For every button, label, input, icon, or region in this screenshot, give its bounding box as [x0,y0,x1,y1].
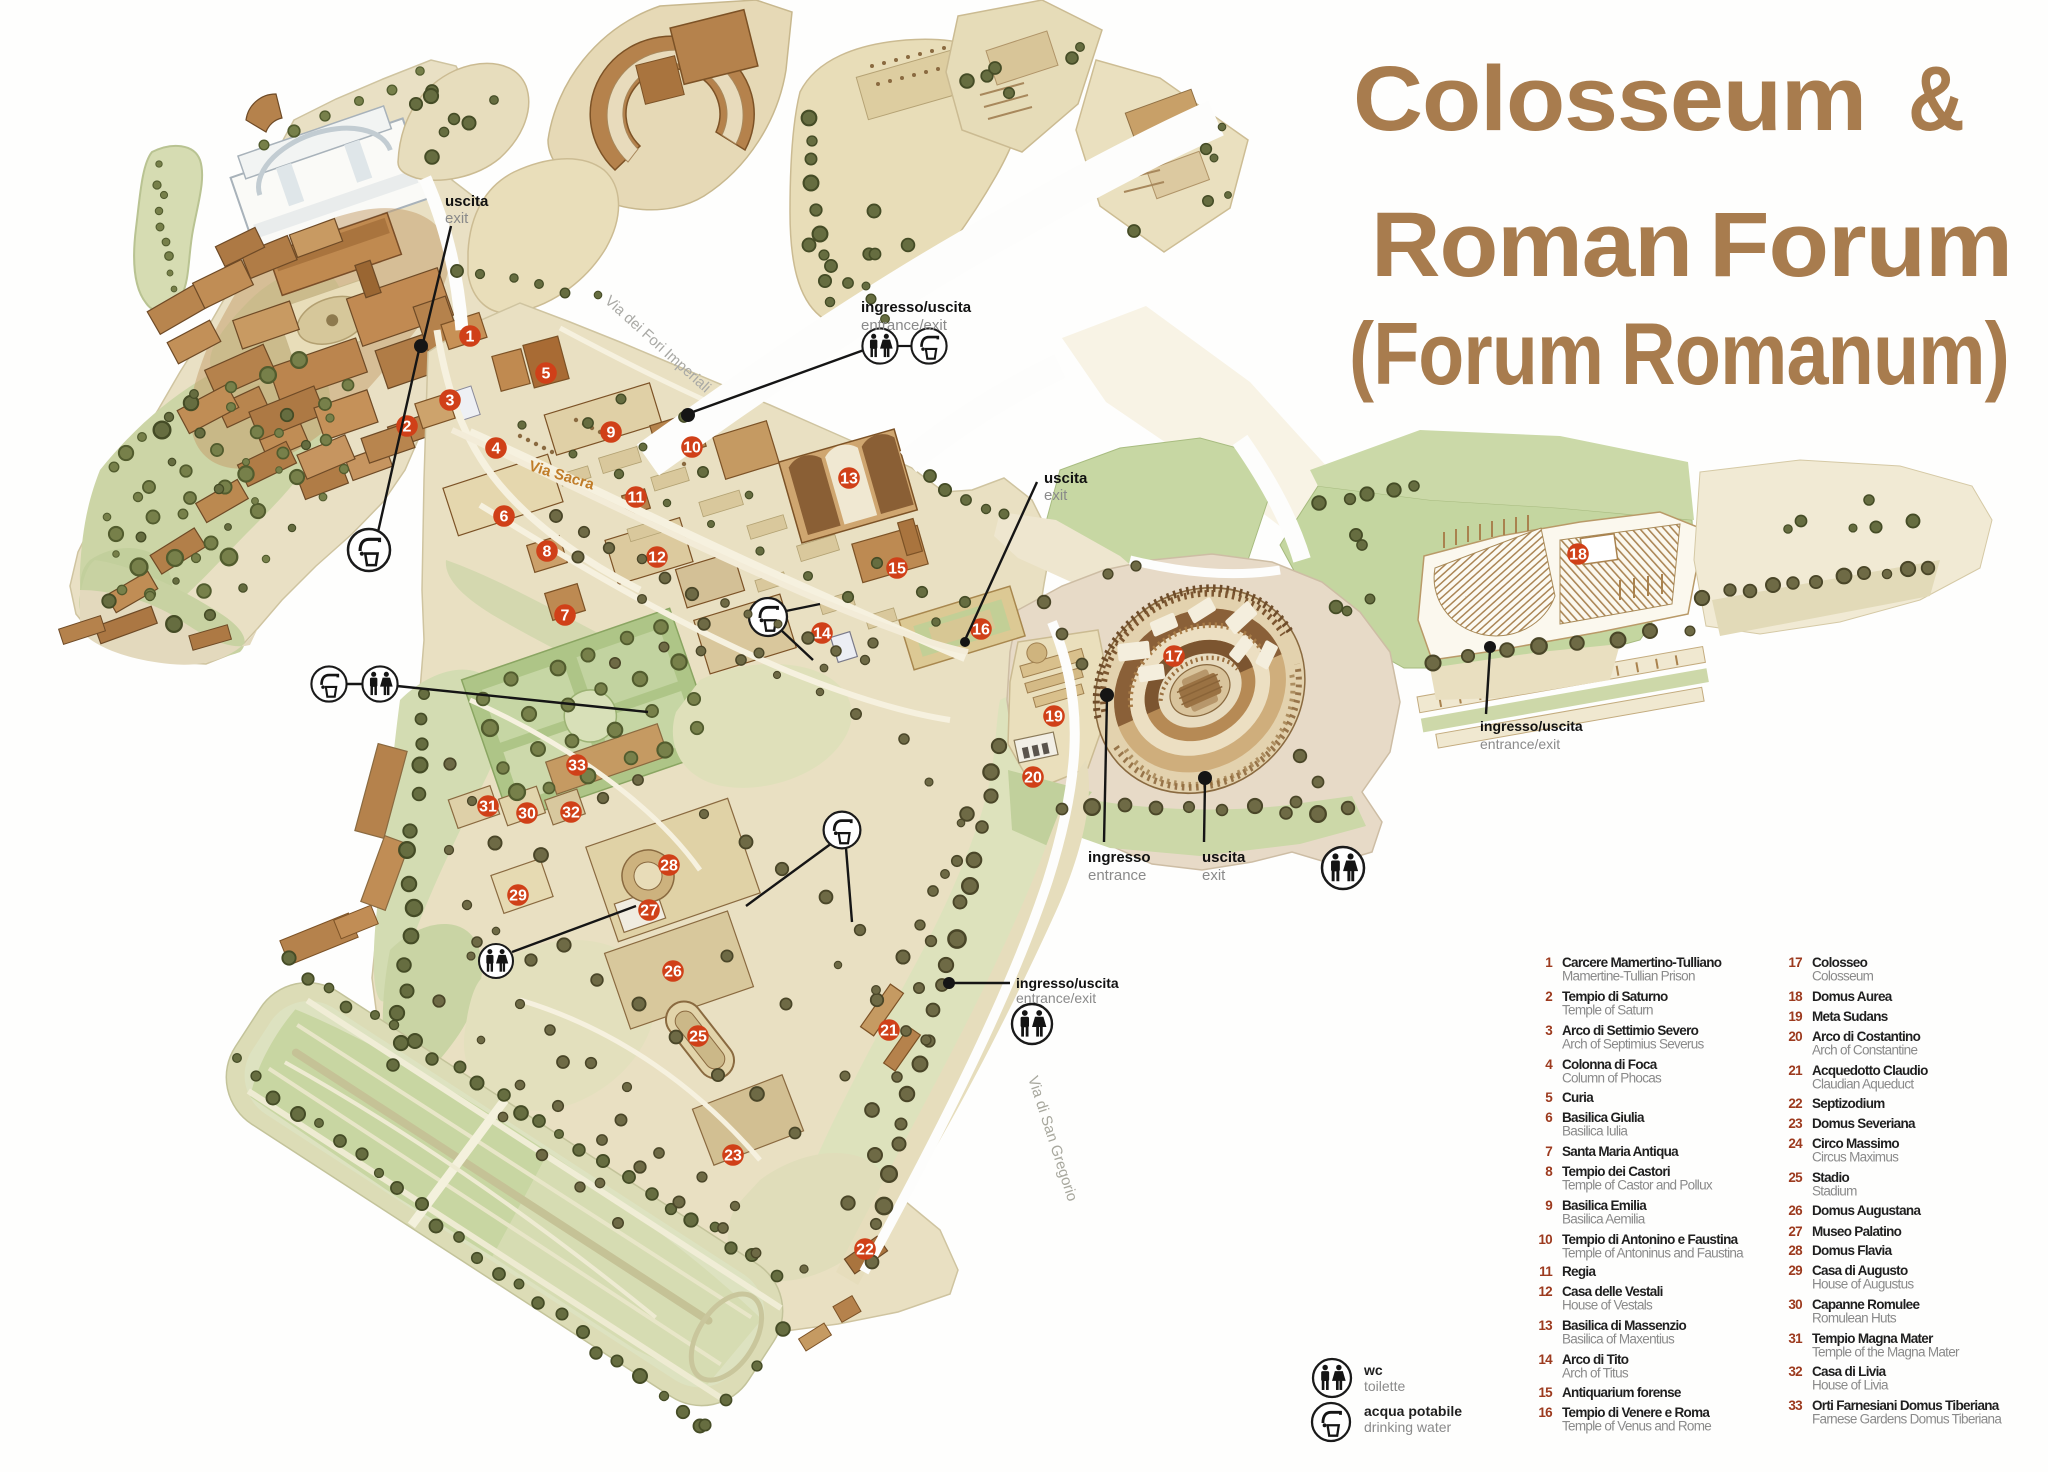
svg-text:11: 11 [628,490,645,507]
svg-text:22: 22 [1788,1096,1802,1111]
svg-text:8: 8 [543,544,552,561]
svg-text:Domus Aurea: Domus Aurea [1812,989,1893,1004]
svg-text:28: 28 [1788,1243,1803,1258]
svg-text:16: 16 [972,622,990,639]
svg-text:Colosseum: Colosseum [1353,48,1866,150]
svg-text:21: 21 [1788,1063,1803,1078]
svg-text:House of Livia: House of Livia [1812,1378,1889,1393]
svg-text:33: 33 [1788,1398,1803,1413]
svg-text:House of Augustus: House of Augustus [1812,1277,1914,1292]
svg-text:1: 1 [466,329,475,346]
svg-text:Antiquarium forense: Antiquarium forense [1562,1385,1682,1400]
svg-text:7: 7 [561,608,570,625]
svg-text:9: 9 [607,425,616,442]
svg-text:10: 10 [683,440,701,457]
svg-text:Temple of Castor and Pollux: Temple of Castor and Pollux [1562,1178,1713,1193]
svg-text:Arch of Septimius Severus: Arch of Septimius Severus [1562,1037,1705,1052]
svg-text:Claudian Aqueduct: Claudian Aqueduct [1812,1077,1914,1092]
svg-text:23: 23 [1788,1116,1803,1131]
svg-text:19: 19 [1788,1009,1802,1024]
svg-text:exit: exit [1044,487,1068,504]
svg-text:Domus Augustana: Domus Augustana [1812,1203,1921,1218]
svg-text:17: 17 [1165,649,1183,666]
svg-text:Curia: Curia [1562,1090,1594,1105]
svg-text:Temple of Venus and Rome: Temple of Venus and Rome [1562,1419,1711,1434]
svg-text:32: 32 [1788,1364,1802,1379]
svg-text:27: 27 [640,903,658,920]
svg-text:Colosseum: Colosseum [1812,969,1874,984]
svg-text:27: 27 [1788,1224,1802,1239]
svg-text:30: 30 [1788,1297,1802,1312]
svg-text:acqua potabile: acqua potabile [1364,1403,1462,1419]
svg-text:Regia: Regia [1562,1264,1596,1279]
svg-text:Circus Maximus: Circus Maximus [1812,1150,1899,1165]
svg-text:Santa Maria Antiqua: Santa Maria Antiqua [1562,1144,1679,1159]
svg-text:26: 26 [664,964,682,981]
svg-text:32: 32 [562,805,580,822]
svg-text:6: 6 [500,509,509,526]
svg-text:13: 13 [840,471,858,488]
svg-text:12: 12 [1538,1284,1552,1299]
svg-text:14: 14 [1538,1352,1553,1367]
svg-text:15: 15 [1538,1385,1553,1400]
svg-text:1: 1 [1545,955,1553,970]
svg-text:entrance/exit: entrance/exit [1016,990,1096,1006]
svg-text:uscita: uscita [1202,849,1246,866]
svg-text:2: 2 [1545,989,1552,1004]
svg-text:25: 25 [1788,1170,1803,1185]
svg-text:Temple of Saturn: Temple of Saturn [1562,1003,1653,1018]
svg-text:Mamertine-Tullian Prison: Mamertine-Tullian Prison [1562,969,1695,984]
svg-text:13: 13 [1538,1318,1553,1333]
svg-text:ingresso/uscita: ingresso/uscita [861,299,972,316]
svg-text:Arch of Constantine: Arch of Constantine [1812,1043,1917,1058]
svg-text:Forum: Forum [1709,194,2012,296]
svg-text:18: 18 [1569,547,1587,564]
svg-text:26: 26 [1788,1203,1803,1218]
svg-text:Stadium: Stadium [1812,1184,1857,1199]
svg-text:24: 24 [1788,1136,1803,1151]
svg-text:uscita: uscita [1044,470,1088,487]
svg-text:Roman: Roman [1371,194,1692,296]
svg-text:16: 16 [1538,1405,1553,1420]
svg-text:4: 4 [492,441,501,458]
svg-text:Farnese Gardens Domus Tiberian: Farnese Gardens Domus Tiberiana [1812,1412,2002,1427]
svg-text:29: 29 [509,888,527,905]
svg-text:ingresso/uscita: ingresso/uscita [1016,975,1119,991]
svg-text:18: 18 [1788,989,1803,1004]
svg-text:20: 20 [1024,770,1042,787]
svg-text:7: 7 [1545,1144,1552,1159]
svg-text:uscita: uscita [445,193,489,210]
svg-text:Basilica Aemilia: Basilica Aemilia [1562,1212,1646,1227]
svg-text:17: 17 [1788,955,1802,970]
svg-text:Column of Phocas: Column of Phocas [1562,1071,1662,1086]
svg-text:Domus Flavia: Domus Flavia [1812,1243,1893,1258]
svg-text:6: 6 [1545,1110,1553,1125]
svg-text:3: 3 [1545,1023,1553,1038]
svg-text:5: 5 [1545,1090,1553,1105]
svg-text:House of Vestals: House of Vestals [1562,1298,1653,1313]
svg-text:drinking water: drinking water [1364,1419,1451,1435]
svg-text:Temple of Antoninus and Fausti: Temple of Antoninus and Faustina [1562,1246,1744,1261]
svg-text:28: 28 [660,858,678,875]
svg-text:14: 14 [813,626,831,643]
svg-text:30: 30 [518,806,536,823]
svg-text:21: 21 [880,1023,898,1040]
svg-text:Meta Sudans: Meta Sudans [1812,1009,1888,1024]
svg-text:10: 10 [1538,1232,1552,1247]
svg-text:23: 23 [724,1148,742,1165]
svg-text:Temple of the Magna Mater: Temple of the Magna Mater [1812,1345,1960,1360]
svg-text:31: 31 [479,799,497,816]
svg-text:wc: wc [1363,1362,1383,1378]
svg-text:9: 9 [1545,1198,1552,1213]
svg-text:entrance: entrance [1088,867,1146,884]
svg-text:Basilica Iulia: Basilica Iulia [1562,1124,1628,1139]
svg-text:Septizodium: Septizodium [1812,1096,1885,1111]
svg-text:entrance/exit: entrance/exit [1480,736,1560,752]
svg-text:exit: exit [1202,867,1226,884]
svg-text:4: 4 [1545,1057,1553,1072]
svg-text:3: 3 [446,393,455,410]
svg-text:33: 33 [568,758,586,775]
svg-text:12: 12 [648,550,666,567]
svg-text:Museo Palatino: Museo Palatino [1812,1224,1902,1239]
svg-text:exit: exit [445,210,469,227]
svg-text:31: 31 [1788,1331,1803,1346]
svg-text:29: 29 [1788,1263,1802,1278]
svg-text:5: 5 [542,366,551,383]
svg-text:20: 20 [1788,1029,1802,1044]
svg-text:entrance/exit: entrance/exit [861,317,948,334]
svg-text:Basilica of Maxentius: Basilica of Maxentius [1562,1332,1675,1347]
svg-text:Arch of Titus: Arch of Titus [1562,1366,1629,1381]
svg-text:11: 11 [1539,1264,1553,1279]
svg-text:8: 8 [1545,1164,1553,1179]
svg-text:25: 25 [689,1029,707,1046]
svg-text:15: 15 [888,561,906,578]
svg-text:Domus Severiana: Domus Severiana [1812,1116,1916,1131]
svg-text:Romanum): Romanum) [1621,304,2009,403]
svg-text:22: 22 [856,1242,874,1259]
svg-text:19: 19 [1045,709,1063,726]
svg-text:ingresso/uscita: ingresso/uscita [1480,718,1583,734]
svg-text:(Forum: (Forum [1349,304,1603,403]
svg-text:ingresso: ingresso [1088,849,1151,866]
svg-text:Romulean Huts: Romulean Huts [1812,1311,1897,1326]
svg-text:&: & [1908,48,1964,150]
svg-text:toilette: toilette [1364,1378,1405,1394]
